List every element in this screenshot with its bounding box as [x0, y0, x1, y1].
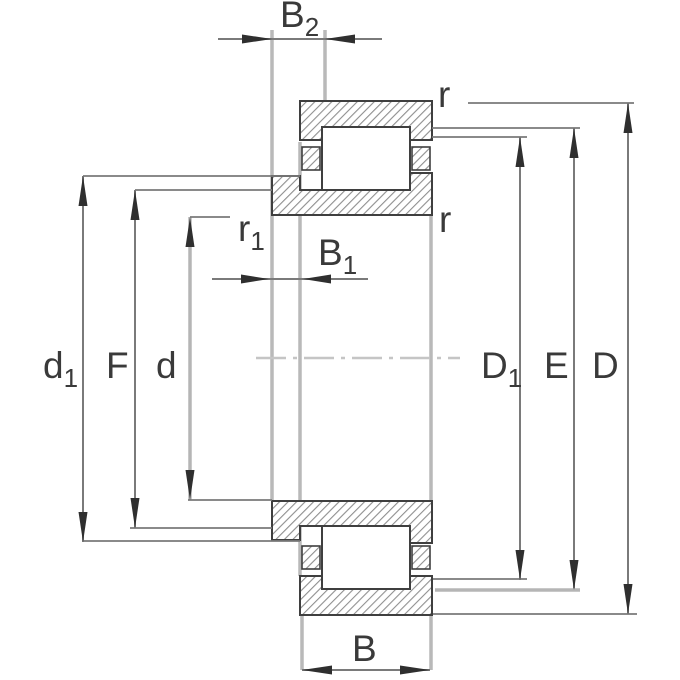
arrow-B1-right	[303, 275, 331, 284]
arrow-d-top	[186, 217, 195, 247]
arrow-D-top	[624, 103, 633, 133]
roller-top	[322, 127, 410, 190]
label-d: d	[156, 345, 177, 386]
label-r-top: r	[438, 74, 450, 115]
label-r1: r1	[238, 208, 265, 256]
arrow-d1-top	[79, 176, 88, 206]
arrow-D1-bottom	[516, 550, 525, 580]
arrow-d1-bottom	[79, 512, 88, 542]
label-E: E	[544, 345, 569, 386]
cage-bottom-right	[412, 546, 430, 569]
roller-bottom	[322, 526, 410, 589]
label-d1: d1	[43, 345, 78, 393]
arrow-E-bottom	[570, 560, 579, 590]
arrow-F-top	[131, 190, 140, 220]
arrow-D1-top	[516, 137, 525, 167]
arrow-B-left	[302, 666, 332, 675]
bearing-dimension-drawing: B2 B1 B d1 F d D1 E D r r r1	[0, 0, 680, 680]
arrow-F-bottom	[131, 498, 140, 528]
label-B: B	[352, 628, 377, 669]
label-B2: B2	[280, 0, 319, 42]
cage-top-left	[302, 147, 320, 170]
arrow-B1-left	[241, 275, 269, 284]
drawing-canvas: B2 B1 B d1 F d D1 E D r r r1	[0, 0, 680, 680]
cage-bottom-left	[302, 546, 320, 569]
arrow-D-bottom	[624, 584, 633, 614]
arrow-B2-right	[325, 35, 355, 44]
arrow-d-bottom	[186, 470, 195, 500]
arrow-B2-left	[242, 35, 272, 44]
label-F: F	[106, 345, 129, 386]
label-B1: B1	[318, 232, 357, 280]
arrow-E-top	[570, 128, 579, 158]
label-D: D	[592, 345, 619, 386]
arrow-B-right	[400, 666, 430, 675]
cage-top-right	[412, 147, 430, 170]
label-D1: D1	[481, 345, 522, 393]
label-r-mid: r	[439, 199, 451, 240]
